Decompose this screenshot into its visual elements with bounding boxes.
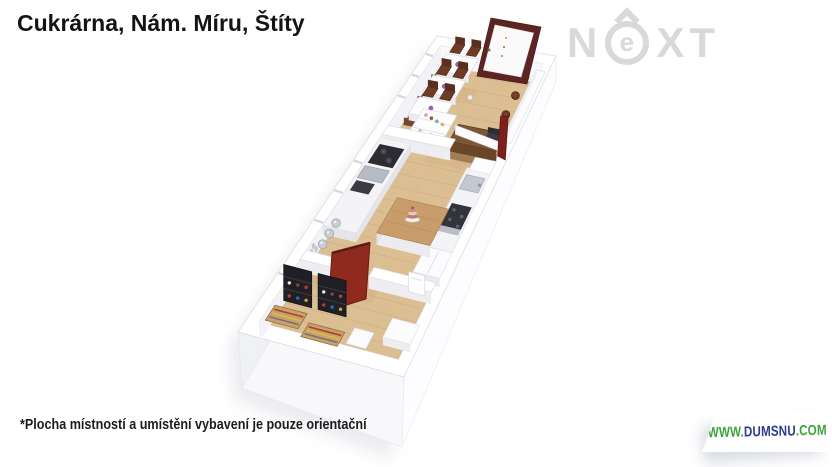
page: Cukrárna, Nám. Míru, Štíty N e X T *Ploc… — [0, 0, 832, 467]
website-url: WWW.DUMSNU.COM — [707, 422, 826, 441]
stored-item — [296, 283, 299, 286]
pastry — [430, 116, 434, 120]
plan-shape — [460, 215, 463, 218]
disclaimer-text: *Plocha místností a umístění vybavení je… — [20, 416, 367, 433]
website-ribbon: WWW.DUMSNU.COM — [702, 411, 832, 452]
floorplan-svg — [0, 0, 832, 467]
door-sticker — [505, 37, 507, 39]
pastry — [441, 123, 445, 127]
cake-topper — [411, 207, 414, 210]
floorplan-image — [0, 0, 832, 467]
plan-shape — [456, 225, 459, 228]
stored-item — [304, 286, 307, 289]
pastry — [424, 113, 428, 117]
stored-item — [339, 295, 342, 298]
website-domain: DUMSNU — [744, 423, 796, 440]
cake-layer — [409, 209, 416, 212]
cake-dome — [325, 229, 334, 238]
boiler — [409, 272, 425, 296]
stored-item — [322, 303, 325, 306]
pendant-lamp — [468, 95, 472, 99]
website-tld: .COM — [795, 422, 826, 439]
door-sticker — [503, 46, 505, 48]
plan-shape — [382, 150, 384, 152]
stored-item — [296, 296, 299, 299]
plan-shape — [327, 231, 330, 234]
cake-dome — [318, 240, 327, 249]
plan-shape — [452, 208, 455, 211]
door-sticker — [501, 55, 503, 57]
plan-shape — [334, 221, 337, 224]
plan-shape — [320, 242, 323, 245]
stored-item — [330, 305, 333, 308]
stored-item — [330, 292, 333, 295]
stored-item — [339, 308, 342, 311]
pastry — [435, 120, 439, 124]
faucet — [478, 184, 481, 187]
plan-shape — [448, 218, 451, 221]
website-www: WWW. — [707, 424, 743, 441]
stored-item — [288, 281, 291, 284]
stored-item — [322, 290, 325, 293]
door-handle — [488, 49, 491, 52]
cake-dome — [332, 219, 341, 228]
plan-shape — [514, 94, 517, 97]
plan-shape — [388, 159, 390, 161]
stored-item — [288, 294, 291, 297]
stored-item — [304, 299, 307, 302]
bottle — [314, 246, 318, 252]
